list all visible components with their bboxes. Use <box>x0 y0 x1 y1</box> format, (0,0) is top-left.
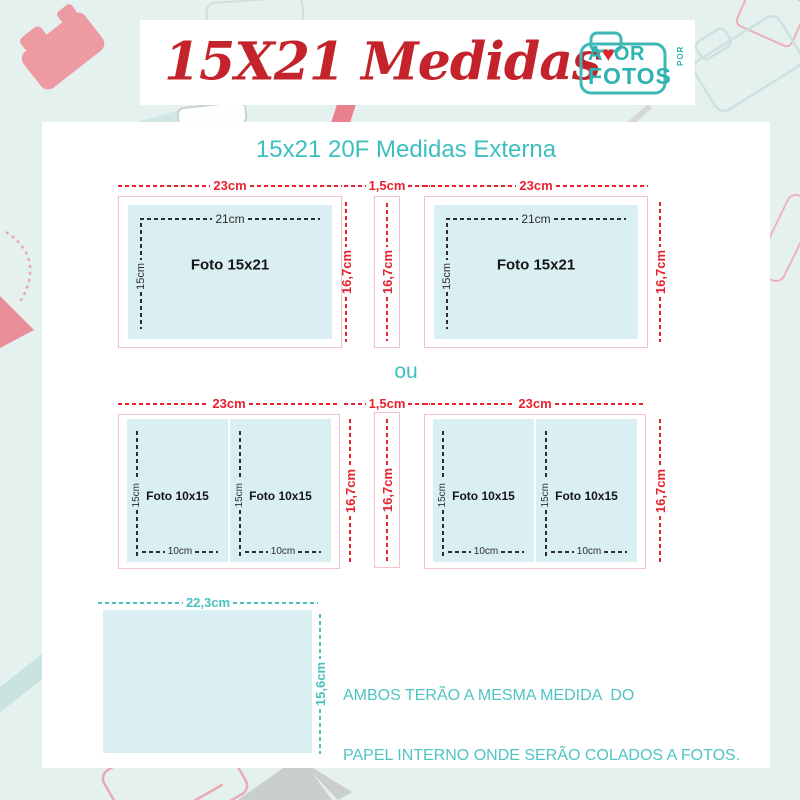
dim-height-row2-right: 16,7cm <box>651 419 669 563</box>
photo-label: Foto 10x15 <box>127 489 228 503</box>
album-page-row1-right: 21cm 15cm Foto 15x21 <box>424 196 648 348</box>
dim-spine-width-row1: 1,5cm <box>344 179 430 192</box>
dash-line <box>448 551 471 553</box>
dash-line <box>556 185 648 187</box>
dim-height-row1-right: 16,7cm <box>651 202 669 342</box>
photo-area-15x21: 21cm 15cm Foto 15x21 <box>128 205 332 339</box>
dim-label: 16,7cm <box>654 247 667 297</box>
dash-line <box>344 185 366 187</box>
inner-paper-area <box>103 610 312 753</box>
dash-line <box>142 551 165 553</box>
dim-label: 22,3cm <box>183 596 233 609</box>
dash-line <box>386 203 388 247</box>
dash-line <box>118 185 210 187</box>
dash-line <box>659 297 661 342</box>
dash-line <box>659 516 661 563</box>
dim-label: 1,5cm <box>366 397 409 410</box>
dim-paper-height: 15,6cm <box>311 614 329 754</box>
photo-label: Foto 10x15 <box>433 489 534 503</box>
divider-ou: ou <box>42 360 770 384</box>
note-line: AMBOS TERÃO A MESMA MEDIDA DO <box>343 686 740 706</box>
dash-line <box>345 297 347 342</box>
dim-photo-width: 21cm <box>140 213 320 225</box>
dim-label: 1,5cm <box>366 179 409 192</box>
spine-row1: 16,7cm <box>374 196 400 348</box>
dash-line <box>118 403 209 405</box>
dim-label: 21cm <box>212 213 247 225</box>
dash-line <box>245 551 268 553</box>
photo-area-15x21: 21cm 15cm Foto 15x21 <box>434 205 638 339</box>
dash-line <box>442 431 444 480</box>
dim-label: 10cm <box>574 547 604 557</box>
dash-line <box>345 202 347 247</box>
photo-label: Foto 10x15 <box>536 489 637 503</box>
dim-photo-width: 10cm <box>245 547 321 557</box>
photo-cells: 15cm Foto 10x15 10cm 15cm Foto 10x15 10c… <box>433 419 637 562</box>
dim-width-row1-right: 23cm <box>424 179 648 192</box>
dash-line <box>386 297 388 341</box>
dash-line <box>349 516 351 563</box>
dim-label: 23cm <box>209 397 248 410</box>
dim-width-row1-left: 23cm <box>118 179 342 192</box>
amor-por-fotos-logo: A♥OR POR FOTOS <box>579 31 685 95</box>
dash-line <box>344 403 366 405</box>
dash-line <box>98 602 183 604</box>
spine-row2: 16,7cm <box>374 412 400 568</box>
dash-line <box>298 551 321 553</box>
dash-line <box>386 419 388 465</box>
dash-line <box>446 223 448 260</box>
dim-label: 15,6cm <box>314 659 327 709</box>
bg-camera-outline-icon <box>682 0 800 115</box>
note-line: PAPEL INTERNO ONDE SERÃO COLADOS A FOTOS… <box>343 746 740 766</box>
dim-spine-height-row2: 16,7cm <box>378 419 396 561</box>
dash-line <box>140 218 212 220</box>
dash-line <box>349 419 351 466</box>
dim-photo-width: 10cm <box>448 547 524 557</box>
dash-line <box>239 510 241 559</box>
dim-label: 16,7cm <box>340 247 353 297</box>
notes-block: AMBOS TERÃO A MESMA MEDIDA DO PAPEL INTE… <box>343 646 740 800</box>
dash-line <box>233 602 318 604</box>
dash-line <box>659 419 661 466</box>
dim-spine-width-row2: 1,5cm <box>344 397 430 410</box>
dim-label: 23cm <box>515 397 554 410</box>
photo-label: Foto 10x15 <box>230 489 331 503</box>
dim-label: 16,7cm <box>654 466 667 516</box>
dash-line <box>424 403 515 405</box>
photo-label: Foto 15x21 <box>434 257 638 274</box>
dim-label: 10cm <box>471 547 501 557</box>
dim-photo-height: 15cm <box>438 223 456 329</box>
logo-letters-or: OR <box>614 43 645 65</box>
measurements-panel: 15x21 20F Medidas Externa 23cm 21cm 15cm… <box>42 122 770 768</box>
photo-area-10x15: 15cm Foto 10x15 10cm <box>230 419 331 562</box>
page-title: 15X21 Medidas <box>164 31 600 92</box>
photo-cells: 15cm Foto 10x15 10cm 15cm Foto 10x15 10c… <box>127 419 331 562</box>
photo-area-10x15: 15cm Foto 10x15 10cm <box>536 419 637 562</box>
dim-label: 16,7cm <box>381 247 394 297</box>
dim-height-row2-left: 16,7cm <box>341 419 359 563</box>
dim-photo-width: 21cm <box>446 213 626 225</box>
photo-area-10x15: 15cm Foto 10x15 10cm <box>127 419 228 562</box>
logo-word-por: POR <box>676 42 685 70</box>
dim-spine-height-row1: 16,7cm <box>378 203 396 341</box>
dim-width-row2-right: 23cm <box>424 397 646 410</box>
dash-line <box>250 185 342 187</box>
dash-line <box>501 551 524 553</box>
dash-line <box>249 403 340 405</box>
photo-area-10x15: 15cm Foto 10x15 10cm <box>433 419 534 562</box>
dash-line <box>545 431 547 480</box>
bg-pink-corner-icon <box>0 296 34 348</box>
dim-photo-width: 10cm <box>142 547 218 557</box>
dash-line <box>136 510 138 559</box>
dash-line <box>442 510 444 559</box>
dash-line <box>545 510 547 559</box>
bg-strap-dotted-icon <box>6 232 30 302</box>
album-page-row2-left: 15cm Foto 10x15 10cm 15cm Foto 10x15 10c… <box>118 414 340 569</box>
dim-label: 16,7cm <box>381 465 394 515</box>
dash-line <box>319 709 321 754</box>
dash-line <box>239 431 241 480</box>
dash-line <box>140 292 142 329</box>
header-banner: 15X21 Medidas A♥OR POR FOTOS <box>140 20 695 105</box>
dash-line <box>136 431 138 480</box>
dash-line <box>446 292 448 329</box>
dash-line <box>195 551 218 553</box>
dash-line <box>319 614 321 659</box>
dim-photo-height: 15cm <box>132 223 150 329</box>
dash-line <box>555 403 646 405</box>
album-page-row2-right: 15cm Foto 10x15 10cm 15cm Foto 10x15 10c… <box>424 414 646 569</box>
dim-photo-width: 10cm <box>551 547 627 557</box>
dim-label: 10cm <box>268 547 298 557</box>
dash-line <box>659 202 661 247</box>
dash-line <box>446 218 518 220</box>
dash-line <box>554 218 626 220</box>
dash-line <box>248 218 320 220</box>
dim-paper-width: 22,3cm <box>98 596 318 609</box>
dash-line <box>140 223 142 260</box>
dim-height-row1-left: 16,7cm <box>337 202 355 342</box>
dash-line <box>551 551 574 553</box>
dash-line <box>424 185 516 187</box>
dash-line <box>604 551 627 553</box>
album-page-row1-left: 21cm 15cm Foto 15x21 <box>118 196 342 348</box>
dim-label: 23cm <box>516 179 555 192</box>
dim-width-row2-left: 23cm <box>118 397 340 410</box>
bg-camera-pink-icon <box>10 0 108 93</box>
photo-label: Foto 15x21 <box>128 257 332 274</box>
dim-label: 23cm <box>210 179 249 192</box>
logo-word-fotos: FOTOS <box>588 63 672 90</box>
panel-title: 15x21 20F Medidas Externa <box>42 136 770 164</box>
dash-line <box>386 515 388 561</box>
dim-label: 10cm <box>165 547 195 557</box>
infographic-page: 15X21 Medidas A♥OR POR FOTOS 15x21 20F M… <box>0 0 800 800</box>
dim-label: 21cm <box>518 213 553 225</box>
bg-film-corner-icon <box>735 0 800 48</box>
dim-label: 16,7cm <box>344 466 357 516</box>
logo-letter-a: A <box>588 43 603 65</box>
